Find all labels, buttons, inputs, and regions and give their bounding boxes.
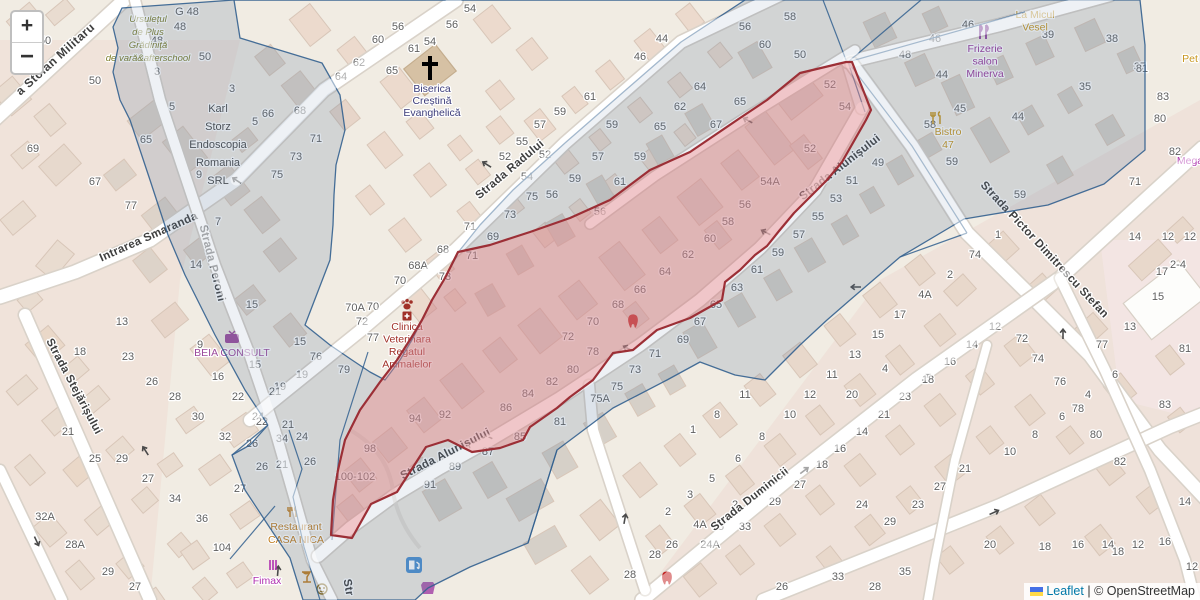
svg-text:6: 6 <box>1112 369 1118 381</box>
svg-text:2-4: 2-4 <box>1170 259 1186 271</box>
svg-text:27: 27 <box>934 481 946 493</box>
svg-text:8: 8 <box>759 431 765 443</box>
svg-text:29: 29 <box>102 566 114 578</box>
svg-text:83: 83 <box>1157 91 1169 103</box>
svg-text:4A: 4A <box>918 289 932 301</box>
svg-text:11: 11 <box>826 369 837 381</box>
svg-text:12: 12 <box>1186 561 1198 573</box>
svg-text:56: 56 <box>446 19 458 31</box>
svg-text:76: 76 <box>1054 376 1066 388</box>
svg-text:61: 61 <box>408 43 420 55</box>
svg-text:4: 4 <box>882 363 888 375</box>
svg-text:80: 80 <box>1090 429 1102 441</box>
svg-text:Fimax: Fimax <box>253 575 282 587</box>
svg-text:25: 25 <box>89 453 101 465</box>
svg-text:24: 24 <box>856 499 868 511</box>
svg-text:8: 8 <box>714 409 720 421</box>
svg-text:57: 57 <box>534 119 546 131</box>
svg-text:72: 72 <box>1016 333 1028 345</box>
svg-text:1: 1 <box>995 229 1001 241</box>
svg-text:5: 5 <box>709 473 715 485</box>
svg-text:65: 65 <box>386 65 398 77</box>
svg-text:28: 28 <box>869 581 881 593</box>
svg-text:27: 27 <box>129 581 141 593</box>
svg-text:12: 12 <box>804 389 816 401</box>
svg-text:23: 23 <box>122 351 134 363</box>
svg-text:13: 13 <box>849 349 861 361</box>
svg-text:29: 29 <box>884 516 896 528</box>
svg-text:Evanghelică: Evanghelică <box>403 107 460 119</box>
svg-text:18: 18 <box>1039 541 1051 553</box>
svg-text:18: 18 <box>74 346 86 358</box>
svg-text:54: 54 <box>424 36 436 48</box>
svg-text:28: 28 <box>169 391 181 403</box>
svg-text:4: 4 <box>1085 389 1091 401</box>
svg-text:6: 6 <box>1059 411 1065 423</box>
svg-text:26: 26 <box>776 581 788 593</box>
svg-text:104: 104 <box>213 542 231 554</box>
svg-text:67: 67 <box>89 176 101 188</box>
svg-text:28: 28 <box>624 569 636 581</box>
svg-text:71: 71 <box>1129 176 1141 188</box>
svg-text:35: 35 <box>899 566 911 578</box>
svg-text:18: 18 <box>1112 546 1124 558</box>
svg-text:74: 74 <box>969 249 981 261</box>
svg-text:83: 83 <box>1159 399 1171 411</box>
svg-text:36: 36 <box>196 513 208 525</box>
svg-text:54: 54 <box>464 3 476 15</box>
svg-text:77: 77 <box>125 200 137 212</box>
svg-text:16: 16 <box>212 371 224 383</box>
svg-text:33: 33 <box>832 571 844 583</box>
svg-text:21: 21 <box>62 426 74 438</box>
svg-text:78: 78 <box>1072 403 1084 415</box>
svg-text:3: 3 <box>687 489 693 501</box>
svg-text:30: 30 <box>192 411 204 423</box>
svg-text:1: 1 <box>690 424 696 436</box>
svg-text:46: 46 <box>634 51 646 63</box>
svg-text:15: 15 <box>1152 291 1164 303</box>
svg-text:12: 12 <box>1184 231 1196 243</box>
svg-text:70A: 70A <box>345 302 365 314</box>
svg-text:12: 12 <box>1132 539 1144 551</box>
svg-text:77: 77 <box>367 332 379 344</box>
svg-text:26: 26 <box>666 539 678 551</box>
svg-text:11: 11 <box>739 389 750 401</box>
svg-text:4A: 4A <box>693 519 707 531</box>
svg-text:6: 6 <box>735 453 741 465</box>
svg-text:26: 26 <box>146 376 158 388</box>
svg-text:50: 50 <box>89 75 101 87</box>
svg-text:20: 20 <box>984 539 996 551</box>
svg-text:17: 17 <box>1156 266 1168 278</box>
svg-text:16: 16 <box>1159 536 1171 548</box>
svg-text:29: 29 <box>116 453 128 465</box>
svg-text:23: 23 <box>912 499 924 511</box>
svg-text:13: 13 <box>1124 321 1136 333</box>
svg-text:13: 13 <box>116 316 128 328</box>
svg-text:44: 44 <box>656 33 668 45</box>
svg-text:27: 27 <box>142 473 154 485</box>
svg-text:55: 55 <box>516 136 528 148</box>
svg-text:22: 22 <box>232 391 244 403</box>
svg-text:32: 32 <box>219 431 231 443</box>
svg-text:28A: 28A <box>65 539 85 551</box>
svg-text:52: 52 <box>499 151 511 163</box>
svg-text:14: 14 <box>1179 496 1191 508</box>
svg-text:14: 14 <box>1129 231 1141 243</box>
svg-text:10: 10 <box>784 409 796 421</box>
svg-text:74: 74 <box>1032 353 1044 365</box>
svg-text:32A: 32A <box>35 511 55 523</box>
svg-text:2: 2 <box>665 506 671 518</box>
svg-text:70: 70 <box>394 275 406 287</box>
svg-text:59: 59 <box>554 106 566 118</box>
svg-text:34: 34 <box>169 493 181 505</box>
svg-text:2: 2 <box>947 269 953 281</box>
svg-text:16: 16 <box>1072 539 1084 551</box>
svg-text:82: 82 <box>1114 456 1126 468</box>
svg-text:Pet: Pet <box>1182 53 1198 65</box>
svg-text:77: 77 <box>1096 339 1108 351</box>
svg-text:20: 20 <box>846 389 858 401</box>
svg-text:8: 8 <box>1032 429 1038 441</box>
svg-text:21: 21 <box>959 463 971 475</box>
svg-text:17: 17 <box>894 309 906 321</box>
svg-text:15: 15 <box>872 329 884 341</box>
svg-text:Creștină: Creștină <box>412 95 451 107</box>
svg-text:12: 12 <box>1162 231 1174 243</box>
svg-text:61: 61 <box>584 91 596 103</box>
svg-text:81: 81 <box>1179 343 1191 355</box>
svg-text:80: 80 <box>1154 113 1166 125</box>
svg-text:10: 10 <box>1004 446 1016 458</box>
svg-text:Biserica: Biserica <box>413 83 451 95</box>
svg-text:28: 28 <box>649 549 661 561</box>
svg-text:69: 69 <box>27 143 39 155</box>
